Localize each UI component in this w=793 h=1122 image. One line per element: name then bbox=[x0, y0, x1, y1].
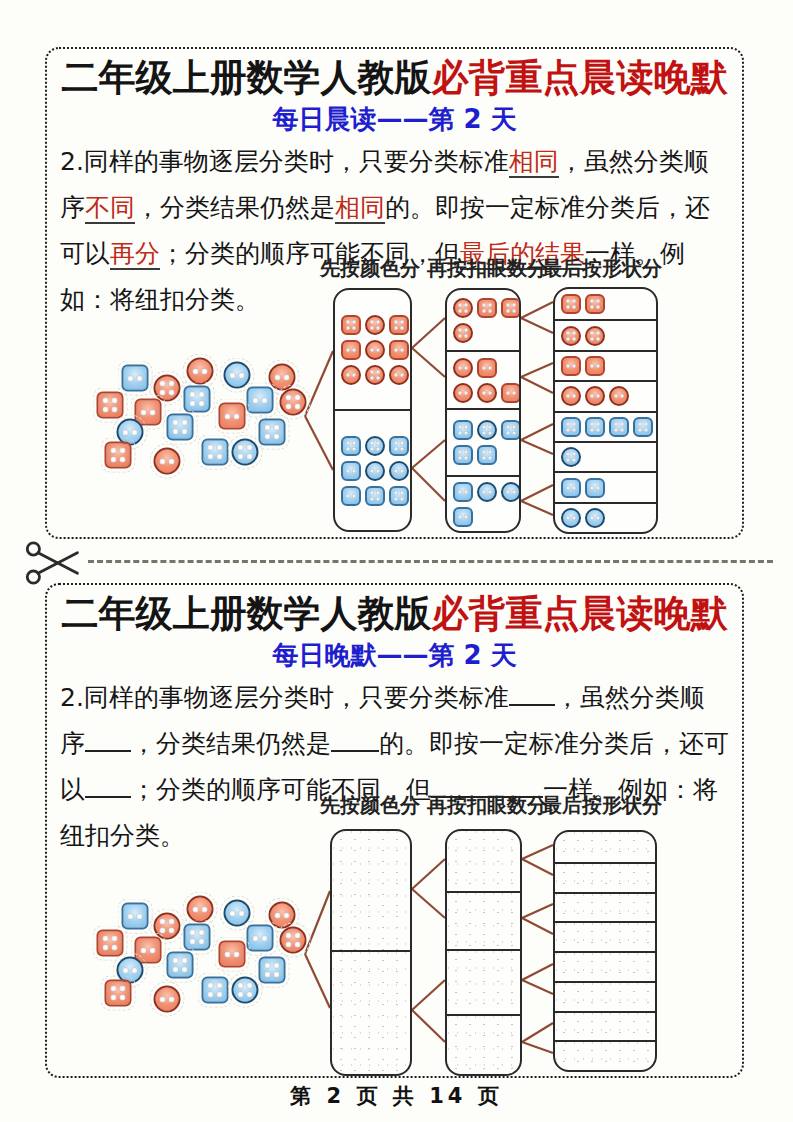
paragraph-text: ；分类的顺序可能不同，但 bbox=[160, 239, 460, 268]
keyword-highlight: 不同 bbox=[85, 193, 135, 224]
keyword-highlight: 再分 bbox=[110, 239, 160, 270]
paragraph-text: ，分类结果仍然是 bbox=[135, 193, 335, 222]
subtitle-evening: 每日晚默——第 2 天 bbox=[47, 639, 742, 671]
fill-in-blank bbox=[509, 680, 555, 706]
title-red-part: 必背重点晨读晚默 bbox=[432, 56, 728, 99]
page-title: 二年级上册数学人教版必背重点晨读晚默 bbox=[47, 56, 742, 100]
paragraph-text: ，分类结果仍然是 bbox=[131, 729, 331, 758]
fill-in-blank bbox=[431, 772, 543, 798]
title-red-part-2: 必背重点晨读晚默 bbox=[432, 592, 728, 635]
fill-in-blank bbox=[85, 772, 131, 798]
section-morning-card: 二年级上册数学人教版必背重点晨读晚默 每日晨读——第 2 天 2.同样的事物逐层… bbox=[45, 47, 744, 539]
dashed-cut-line bbox=[88, 560, 773, 563]
keyword-highlight: 相同 bbox=[335, 193, 385, 224]
paragraph-text: 2.同样的事物逐层分类时，只要分类标准 bbox=[60, 683, 509, 712]
section-evening-card: 二年级上册数学人教版必背重点晨读晚默 每日晚默——第 2 天 2.同样的事物逐层… bbox=[45, 583, 744, 1078]
keyword-highlight: 相同 bbox=[509, 147, 559, 178]
paragraph-text: ；分类的顺序可能不同，但 bbox=[131, 775, 431, 804]
scissors-icon bbox=[24, 540, 84, 586]
paragraph-text: 2.同样的事物逐层分类时，只要分类标准 bbox=[60, 147, 509, 176]
worksheet-page: 二年级上册数学人教版必背重点晨读晚默 每日晨读——第 2 天 2.同样的事物逐层… bbox=[0, 0, 793, 1122]
keyword-highlight: 最后的结果 bbox=[460, 239, 585, 270]
fill-in-blank bbox=[331, 726, 379, 752]
page-footer: 第 2 页 共 14 页 bbox=[0, 1082, 793, 1110]
subtitle-morning: 每日晨读——第 2 天 bbox=[47, 103, 742, 135]
cut-line bbox=[0, 540, 793, 586]
title-black-part-2: 二年级上册数学人教版 bbox=[62, 592, 432, 635]
title-black-part: 二年级上册数学人教版 bbox=[62, 56, 432, 99]
paragraph-morning: 2.同样的事物逐层分类时，只要分类标准相同，虽然分类顺序不同，分类结果仍然是相同… bbox=[60, 139, 729, 323]
fill-in-blank bbox=[85, 726, 131, 752]
page-title-2: 二年级上册数学人教版必背重点晨读晚默 bbox=[47, 592, 742, 636]
paragraph-evening: 2.同样的事物逐层分类时，只要分类标准，虽然分类顺序，分类结果仍然是的。即按一定… bbox=[60, 675, 729, 859]
